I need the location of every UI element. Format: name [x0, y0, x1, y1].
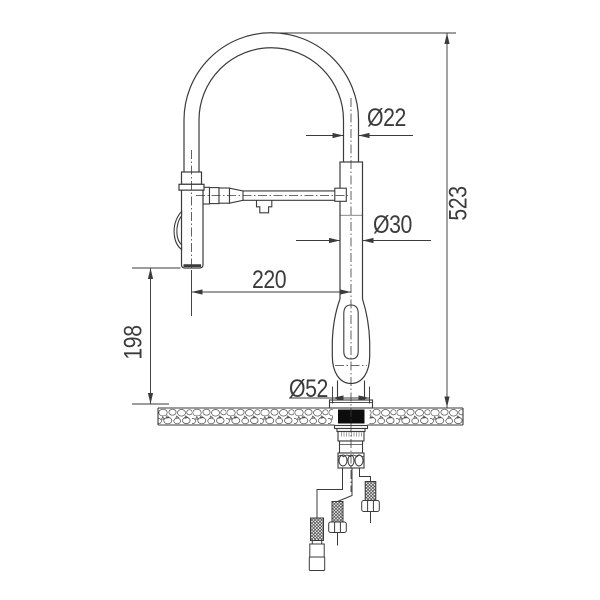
dimension-label-riser-diameter: Ø30 — [373, 213, 412, 238]
spray-trigger — [174, 212, 182, 250]
countertop — [158, 408, 463, 426]
technical-drawing-canvas: Ø22 Ø30 Ø52 220 198 523 — [0, 0, 600, 600]
dimension-label-overall-height: 523 — [447, 174, 472, 234]
dimension-label-spray-height: 198 — [122, 313, 147, 373]
supply-hoses — [309, 469, 379, 571]
dimension-label-base-diameter: Ø52 — [289, 377, 328, 402]
spout-arc — [184, 33, 359, 172]
support-arm — [203, 187, 346, 213]
dimension-label-reach: 220 — [252, 268, 286, 293]
arm-socket — [335, 188, 347, 201]
spray-head — [174, 172, 204, 268]
faucet-line-drawing — [0, 0, 600, 600]
dimension-label-spout-diameter: Ø22 — [367, 106, 406, 131]
